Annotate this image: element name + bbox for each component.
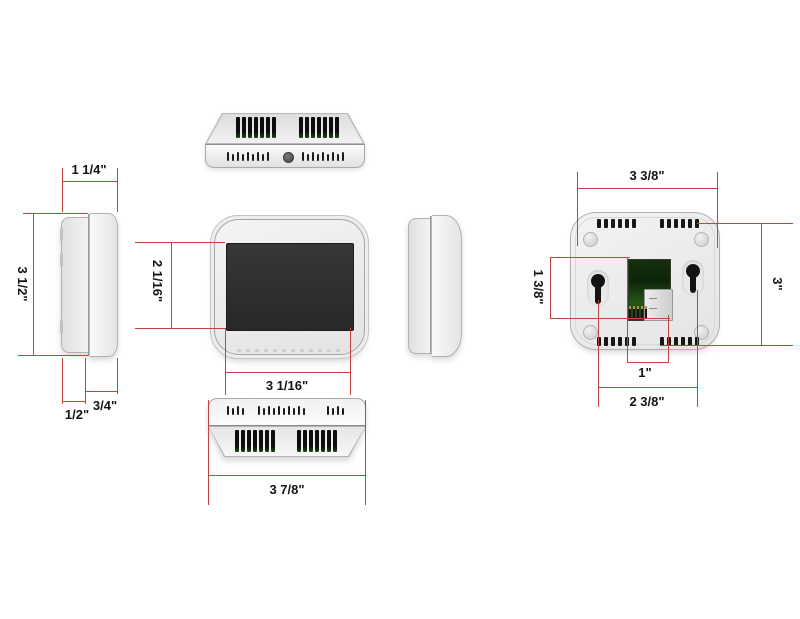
vent-slot [688, 219, 692, 228]
dim-label-back-width: 3 3/8" [612, 169, 682, 183]
extension-line [208, 400, 209, 505]
dim-line [33, 213, 34, 355]
vent-dash [232, 408, 234, 415]
vent-dash [342, 152, 344, 161]
vent-dash [293, 408, 295, 415]
extension-line [23, 213, 88, 214]
extension-line [660, 345, 793, 346]
dim-label-screen-height: 2 1/16" [150, 246, 164, 316]
dim-label-side-front-depth: 3/4" [75, 399, 135, 413]
dim-line [85, 391, 117, 392]
vent-slot [254, 117, 258, 138]
vent-slot [681, 219, 685, 228]
vent-dash [263, 408, 265, 415]
pin [645, 306, 647, 318]
extension-line [135, 328, 225, 329]
skirt [208, 426, 366, 457]
dimension-drawing: 1 1/4" 3 1/2" 1/2" 3/4" 2 1/16" 3 1/16" … [0, 0, 800, 619]
back-plate [61, 217, 89, 353]
extension-line [577, 172, 578, 246]
screen [226, 243, 354, 331]
vent-dash [312, 152, 314, 161]
dim-line [577, 188, 717, 189]
corner-screw [583, 232, 598, 247]
top-vent-group [236, 117, 276, 138]
vent-slot [247, 430, 251, 452]
bottom-vent-group [235, 430, 275, 452]
dim-label-terminal-width: 1" [625, 366, 665, 380]
extension-line [62, 358, 63, 404]
vent-slot [305, 117, 309, 138]
vent-dash [247, 152, 249, 161]
vent-dash [332, 408, 334, 415]
extension-line [18, 355, 88, 356]
vent-dash [252, 154, 254, 161]
vent-dash [232, 154, 234, 161]
top-view [205, 113, 365, 168]
dim-line [171, 242, 172, 328]
vent-dash [283, 408, 285, 415]
extension-line [697, 290, 698, 407]
extension-line [598, 300, 599, 407]
pin [641, 306, 643, 318]
vent-dash [268, 406, 270, 415]
vent-dash [317, 154, 319, 161]
dim-line [761, 223, 762, 345]
vent-slot [311, 117, 315, 138]
vent-dash [273, 408, 275, 415]
extension-line [85, 358, 86, 404]
dim-line [598, 387, 697, 388]
front-vent-dashes [258, 406, 305, 415]
vent-slot [266, 117, 270, 138]
vent-slot [253, 430, 257, 452]
vent-slot [309, 430, 313, 452]
vent-slot [260, 117, 264, 138]
dim-label-side-height: 3 1/2" [15, 249, 29, 319]
extension-line [697, 223, 793, 224]
terminal-mark [649, 298, 657, 299]
corner-screw [583, 325, 598, 340]
vent-slot [315, 430, 319, 452]
terminal-mark [649, 308, 657, 309]
vent-dash [327, 406, 329, 415]
vent-dash [332, 152, 334, 161]
vent-dash [302, 152, 304, 161]
dim-label-back-height: 3" [770, 269, 784, 299]
vent-dash [237, 152, 239, 161]
pin [633, 306, 635, 318]
back-vent-group-top-right [660, 219, 699, 228]
vent-dash [258, 406, 260, 415]
side-notch [60, 228, 63, 241]
vent-dash [337, 406, 339, 415]
pin-header [629, 306, 647, 318]
pin [629, 306, 631, 318]
vent-slot [323, 117, 327, 138]
back-plate [408, 218, 431, 354]
front-view [210, 215, 369, 359]
dim-line [627, 362, 668, 363]
pin [637, 306, 639, 318]
vent-dash [342, 408, 344, 415]
vent-slot [611, 219, 615, 228]
vent-dash [307, 154, 309, 161]
sensor-dot [283, 152, 294, 163]
vent-dash [227, 406, 229, 415]
vent-slot [604, 219, 608, 228]
vent-slot [259, 430, 263, 452]
extension-line [550, 318, 670, 319]
front-vent-dashes [302, 152, 344, 161]
bottom-vent-group [297, 430, 337, 452]
keyhole-stem-right [690, 274, 696, 293]
extension-line [135, 242, 225, 243]
vent-slot [604, 337, 608, 346]
side-notch [60, 253, 63, 266]
bottom-vent-hint [237, 349, 342, 352]
vent-dash [227, 152, 229, 161]
top-vent-group [299, 117, 339, 138]
corner-screw [694, 232, 709, 247]
vent-slot [236, 117, 240, 138]
side-view-right [408, 215, 462, 355]
extension-line [627, 258, 628, 363]
vent-dash [322, 152, 324, 161]
dim-label-side-top-width: 1 1/4" [54, 163, 124, 177]
vent-dash [303, 408, 305, 415]
extension-line [117, 358, 118, 394]
back-vent-group-top-left [597, 219, 636, 228]
vent-slot [611, 337, 615, 346]
extension-line [350, 328, 351, 395]
extension-line [225, 328, 226, 395]
dim-line [208, 475, 365, 476]
vent-slot [660, 219, 664, 228]
extension-line [717, 172, 718, 248]
dim-label-keyhole-spacing: 2 3/8" [612, 395, 682, 409]
dim-label-screen-width: 3 1/16" [247, 379, 327, 393]
vent-slot [667, 219, 671, 228]
vent-slot [327, 430, 331, 452]
vent-dash [242, 154, 244, 161]
vent-dash [327, 154, 329, 161]
vent-slot [333, 430, 337, 452]
vent-slot [242, 117, 246, 138]
vent-slot [618, 337, 622, 346]
dim-label-bottom-width: 3 7/8" [252, 483, 322, 497]
vent-slot [317, 117, 321, 138]
vent-slot [241, 430, 245, 452]
vent-slot [303, 430, 307, 452]
extension-line [550, 257, 630, 258]
vent-slot [632, 337, 636, 346]
vent-dash [262, 154, 264, 161]
vent-slot [329, 117, 333, 138]
front-vent-dashes [227, 152, 269, 161]
vent-slot [235, 430, 239, 452]
dim-label-back-left-offset: 1 3/8" [531, 257, 545, 317]
front-vent-dashes [227, 406, 244, 415]
front-vent-dashes [327, 406, 344, 415]
side-notch [60, 320, 63, 333]
vent-slot [321, 430, 325, 452]
vent-dash [337, 154, 339, 161]
side-view-left [61, 213, 118, 357]
vent-slot [297, 430, 301, 452]
vent-slot [335, 117, 339, 138]
front-shell [90, 213, 118, 357]
vent-dash [242, 408, 244, 415]
vent-dash [298, 406, 300, 415]
vent-slot [597, 219, 601, 228]
back-vent-group-bottom-left [597, 337, 636, 346]
extension-line [365, 400, 366, 505]
vent-dash [278, 406, 280, 415]
vent-slot [625, 219, 629, 228]
vent-slot [265, 430, 269, 452]
vent-slot [272, 117, 276, 138]
vent-dash [288, 406, 290, 415]
vent-slot [271, 430, 275, 452]
bottom-view [208, 398, 366, 457]
front-shell [432, 215, 462, 357]
dim-line [550, 257, 551, 318]
vent-dash [257, 152, 259, 161]
vent-slot [618, 219, 622, 228]
extension-line [668, 315, 669, 363]
vent-dash [237, 406, 239, 415]
vent-dash [267, 152, 269, 161]
vent-slot [248, 117, 252, 138]
vent-slot [674, 219, 678, 228]
vent-slot [299, 117, 303, 138]
dim-line [62, 181, 117, 182]
dim-line [225, 372, 350, 373]
vent-slot [632, 219, 636, 228]
top-face [205, 113, 365, 144]
